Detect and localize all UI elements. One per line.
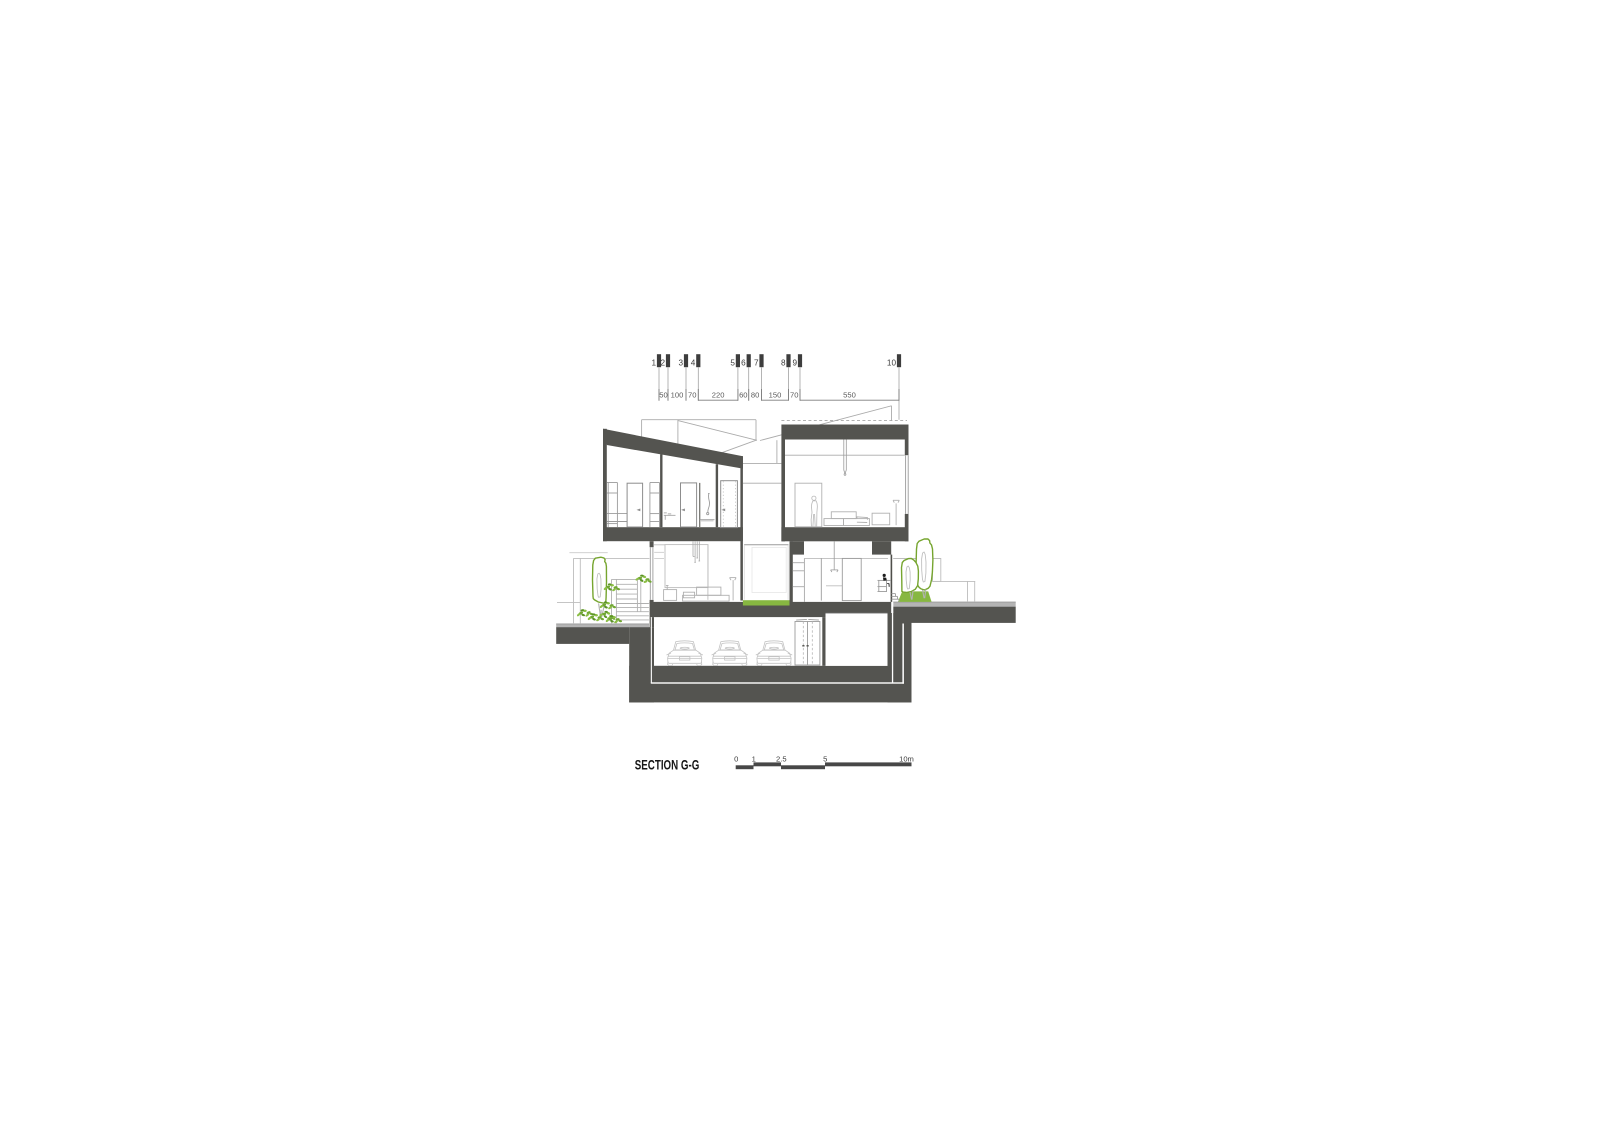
svg-text:60: 60	[739, 391, 747, 400]
svg-text:150: 150	[769, 391, 782, 400]
svg-text:10: 10	[887, 359, 897, 368]
svg-text:2.5: 2.5	[776, 754, 787, 763]
svg-text:3: 3	[678, 359, 683, 368]
svg-text:550: 550	[843, 391, 856, 400]
svg-text:4: 4	[691, 359, 696, 368]
svg-text:SECTION G-G: SECTION G-G	[635, 756, 700, 772]
svg-text:9: 9	[792, 359, 797, 368]
svg-text:2: 2	[660, 359, 665, 368]
svg-text:7: 7	[754, 359, 759, 368]
svg-text:80: 80	[751, 391, 759, 400]
svg-text:1: 1	[651, 359, 656, 368]
svg-text:0: 0	[734, 754, 738, 763]
svg-text:50: 50	[659, 391, 667, 400]
svg-text:220: 220	[712, 391, 725, 400]
svg-text:1: 1	[752, 754, 756, 763]
svg-text:6: 6	[741, 359, 746, 368]
svg-text:10m: 10m	[899, 754, 914, 763]
svg-text:8: 8	[781, 359, 786, 368]
svg-text:100: 100	[671, 391, 684, 400]
svg-text:70: 70	[790, 391, 798, 400]
svg-text:70: 70	[688, 391, 696, 400]
svg-text:5: 5	[730, 359, 735, 368]
svg-text:5: 5	[823, 754, 827, 763]
